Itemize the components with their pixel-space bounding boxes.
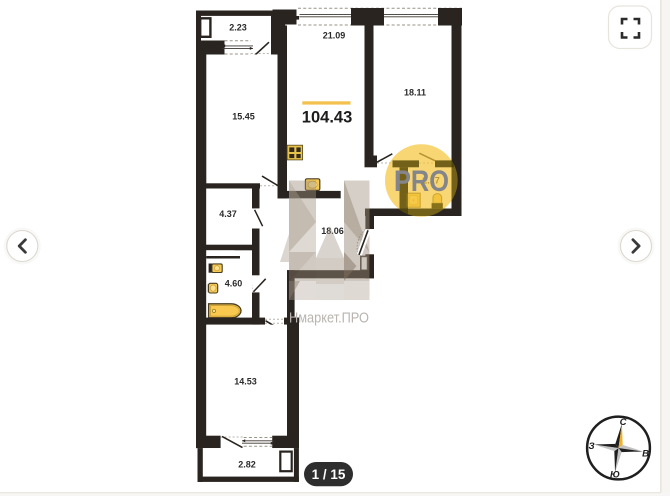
svg-text:З: З	[588, 441, 594, 452]
svg-text:4.60: 4.60	[225, 278, 243, 288]
svg-text:Нмаркет.ПРО: Нмаркет.ПРО	[289, 310, 369, 326]
svg-text:4.37: 4.37	[219, 209, 237, 219]
svg-text:1 / 15: 1 / 15	[312, 467, 346, 482]
svg-text:104.43: 104.43	[302, 108, 352, 126]
svg-text:2.82: 2.82	[238, 459, 256, 469]
svg-text:PRO: PRO	[394, 165, 449, 198]
svg-text:14.53: 14.53	[234, 376, 257, 386]
svg-text:С: С	[620, 417, 627, 428]
svg-text:21.09: 21.09	[323, 31, 346, 41]
svg-text:2.23: 2.23	[229, 23, 247, 33]
svg-text:15.45: 15.45	[232, 111, 255, 121]
svg-text:18.11: 18.11	[404, 88, 426, 98]
svg-text:Ю: Ю	[610, 470, 620, 481]
svg-text:В: В	[642, 449, 649, 460]
